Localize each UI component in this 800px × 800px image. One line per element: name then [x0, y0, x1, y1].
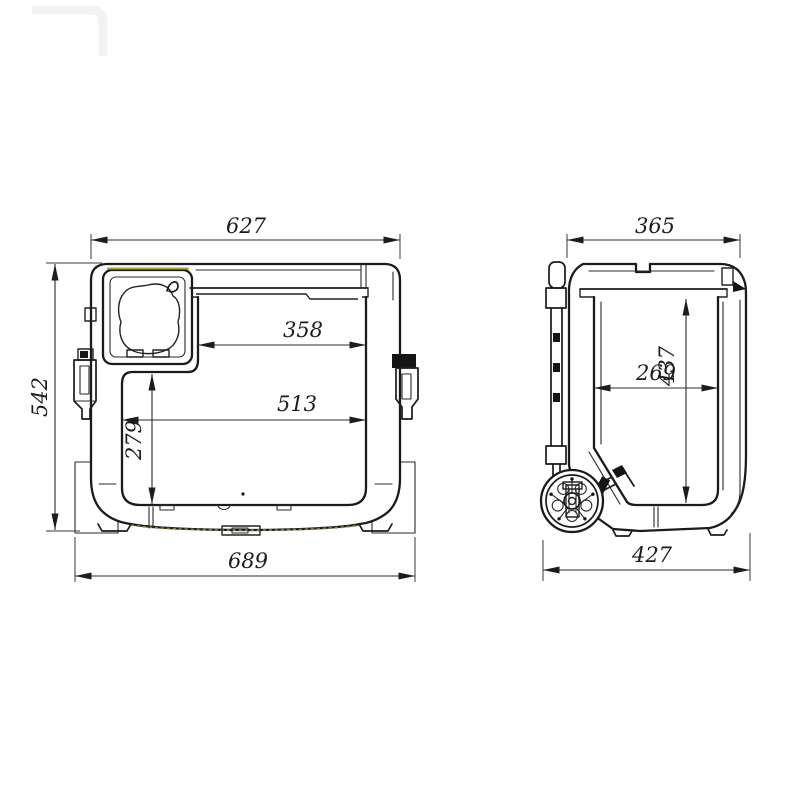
dim-label-513: 513: [277, 392, 317, 416]
front-body-outline: [91, 264, 400, 530]
dim-label-427: 427: [631, 543, 673, 567]
dim-label-279: 279: [122, 420, 146, 461]
dim-label-689: 689: [228, 549, 268, 573]
cavity-dot: [241, 492, 244, 495]
trolley-handle: [546, 262, 566, 486]
dim-side-base-depth: 427: [543, 533, 750, 581]
dim-front-top-width: 627: [91, 214, 400, 259]
technical-drawing: 627 542 358 513 279 689: [0, 0, 800, 800]
dim-label-269: 269: [635, 361, 676, 385]
dim-side-top-depth: 365: [567, 214, 740, 258]
front-view: 627 542 358 513 279 689: [28, 214, 418, 582]
drawing-sheet: 627 542 358 513 279 689: [0, 0, 800, 800]
wheel: [541, 470, 603, 532]
dim-label-358: 358: [283, 318, 323, 342]
dim-label-542: 542: [28, 377, 52, 417]
dim-front-base-width: 689: [75, 537, 415, 582]
side-view: 365 437 269 427: [541, 214, 750, 581]
dim-label-365: 365: [635, 214, 675, 238]
faint-watermark: [32, 10, 103, 56]
dim-label-627: 627: [226, 214, 267, 238]
